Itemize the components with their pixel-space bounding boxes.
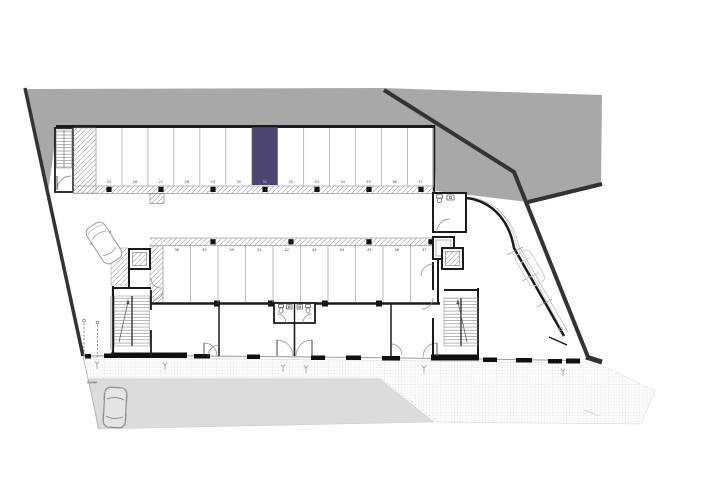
wc-rooms-center <box>274 303 315 323</box>
floor-plan: 25262728293031323334353637 3839404142434… <box>0 0 708 492</box>
entrance-doors <box>277 323 312 356</box>
parking-space-number: 39 <box>202 248 207 252</box>
parking-space-number: 28 <box>185 180 190 184</box>
highlighted-parking-space[interactable] <box>252 127 278 185</box>
parking-space-number: 42 <box>284 248 289 252</box>
parking-row-top: 25262728293031323334353637 <box>96 127 434 185</box>
building-walls <box>56 125 434 194</box>
right-core <box>421 193 478 356</box>
parking-space-number: 45 <box>367 248 372 252</box>
boundary-corner <box>586 357 602 362</box>
terrain-area <box>27 88 602 202</box>
parking-space-number: 35 <box>366 180 371 184</box>
wall-stub <box>150 194 164 204</box>
ramp-wall <box>466 198 564 336</box>
parking-space-number: 26 <box>133 180 138 184</box>
parking-space-number: 46 <box>394 248 399 252</box>
parking-space-number: 41 <box>257 248 262 252</box>
parking-space-number: 47 <box>422 248 427 252</box>
stairwell-top-left <box>55 128 73 192</box>
toilet-icon <box>279 305 284 308</box>
gate-post-icon <box>96 321 99 324</box>
parking-space-number: 27 <box>159 180 164 184</box>
street-car-icon <box>102 387 128 428</box>
parking-space-number: 40 <box>229 248 234 252</box>
parking-space-number: 32 <box>288 180 293 184</box>
gate-post-icon <box>83 319 86 322</box>
parking-row-middle: 38394041424344454647 <box>163 246 438 304</box>
parking-space-number: 38 <box>174 248 179 252</box>
parking-space-number: 43 <box>312 248 317 252</box>
parking-space-number: 25 <box>107 180 112 184</box>
toilet-icon <box>437 195 443 198</box>
parking-space-number: 44 <box>339 248 344 252</box>
parking-space-number: 31 <box>262 180 267 184</box>
door-swing <box>421 264 433 276</box>
stairwell-left-core <box>115 296 150 346</box>
parking-space-number: 34 <box>340 180 345 184</box>
toilet-icon <box>306 305 311 308</box>
parking-space-number: 29 <box>211 180 216 184</box>
parking-space-number: 30 <box>236 180 241 184</box>
entry-gate <box>83 319 99 357</box>
stairwell-right-core <box>444 298 478 346</box>
parking-space-number: 33 <box>314 180 319 184</box>
floor-plan-drawing: 25262728293031323334353637 3839404142434… <box>0 0 708 492</box>
parking-space-number: 36 <box>392 180 397 184</box>
ramp-label: RAMPA <box>87 381 98 385</box>
parking-space-number: 37 <box>418 180 423 184</box>
ramp-car-icon <box>514 248 547 288</box>
